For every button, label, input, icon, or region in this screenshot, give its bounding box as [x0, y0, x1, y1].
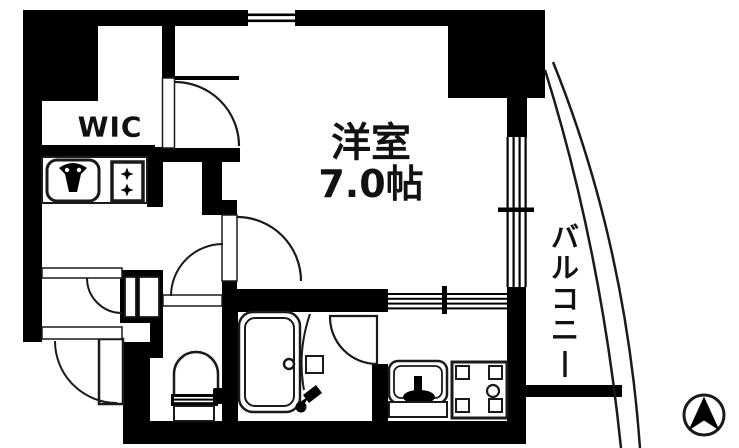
wic-door — [163, 76, 240, 148]
wall-toilet-bath — [222, 298, 238, 423]
door-leaf — [99, 339, 123, 404]
closet-bottom-band — [42, 327, 122, 339]
kitchen — [42, 157, 147, 203]
wall-right-stub — [507, 98, 527, 137]
svg-text:バ: バ — [551, 221, 579, 254]
washroom — [389, 361, 507, 418]
wall-mainroom-bottom — [237, 289, 388, 312]
door-slot — [139, 277, 159, 317]
bath-shelf — [306, 356, 323, 373]
svg-text:ニ: ニ — [551, 314, 579, 347]
door-swing-pie — [330, 316, 377, 364]
wall-topright-column — [448, 10, 545, 98]
svg-text:ル: ル — [551, 252, 579, 285]
toilet-icon — [171, 352, 225, 421]
washroom-window-icon — [388, 286, 507, 314]
kitchen-sink-icon — [47, 160, 99, 201]
shower-curtain-line — [302, 314, 310, 390]
washbasin-icon — [389, 361, 447, 417]
door-swing-arc — [237, 217, 301, 281]
toilet-bowl — [174, 352, 218, 397]
door-slot — [125, 277, 136, 317]
wall-genkan-block — [123, 342, 150, 423]
floorplan-svg: WIC 洋室 7.0帖 バルコニ — [0, 0, 739, 448]
bathtub-icon — [239, 312, 300, 412]
door-opening — [222, 215, 237, 281]
wall-bottom — [123, 421, 523, 444]
wall-above-wic-door — [162, 25, 175, 78]
tub-faucet — [284, 359, 294, 369]
floorplan-page: WIC 洋室 7.0帖 バルコニ — [0, 0, 739, 448]
entrance-door — [55, 339, 123, 404]
wic-label: WIC — [78, 111, 143, 144]
wall-hall-top — [140, 148, 240, 162]
toilet-door — [163, 244, 223, 306]
main-room-label: 洋室 — [331, 120, 411, 166]
bathroom-door — [330, 316, 377, 364]
door-swing-arc — [87, 278, 122, 313]
toilet-seat-bar — [171, 394, 218, 406]
main-room-size-label: 7.0帖 — [318, 162, 423, 206]
bathroom — [239, 312, 323, 413]
door-swing-arc — [171, 244, 223, 296]
compass-north-icon — [684, 395, 724, 435]
washbasin-counter — [389, 402, 447, 417]
drain-circle — [487, 385, 499, 397]
door-opening — [163, 78, 175, 148]
door-leaf — [175, 76, 239, 80]
window-tick — [498, 208, 534, 213]
toilet-tank — [174, 406, 214, 421]
door-swing-arc — [175, 82, 239, 146]
wall-balcony-bottom — [524, 385, 622, 397]
svg-text:コ: コ — [551, 283, 579, 316]
wall-bath-washroom — [372, 364, 388, 421]
wall-wic-divider — [42, 145, 155, 157]
toilet-handle — [213, 388, 225, 404]
stove-icon — [112, 162, 143, 201]
washing-machine-pan-icon — [452, 362, 507, 418]
balcony-sliding-door-icon — [498, 137, 534, 287]
closet-top-band — [42, 268, 122, 278]
closet-room — [42, 268, 122, 339]
wall-left — [23, 10, 42, 342]
top-window-icon — [248, 10, 295, 26]
door-threshold — [163, 295, 222, 306]
wall-right — [507, 287, 526, 444]
window-tick — [442, 286, 447, 314]
balcony-label: バルコニ — [551, 221, 579, 378]
main-room-door — [222, 215, 301, 281]
wall-hall-corner — [202, 200, 237, 215]
